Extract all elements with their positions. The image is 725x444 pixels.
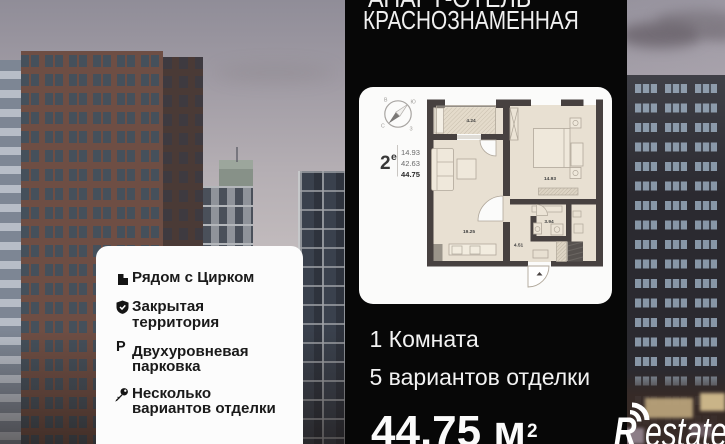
- svg-text:З: З: [410, 127, 413, 133]
- svg-text:19.25: 19.25: [463, 229, 475, 235]
- svg-text:14.93: 14.93: [544, 176, 556, 182]
- svg-text:В: В: [384, 98, 388, 104]
- svg-text:4.24: 4.24: [466, 118, 476, 124]
- svg-text:2: 2: [380, 153, 391, 174]
- svg-text:estate: estate: [645, 408, 725, 444]
- svg-text:е: е: [391, 151, 397, 163]
- svg-text:44.75: 44.75: [401, 170, 421, 179]
- svg-text:Ю: Ю: [411, 100, 416, 106]
- svg-text:42.63: 42.63: [401, 159, 420, 168]
- svg-text:3.94: 3.94: [544, 219, 554, 225]
- svg-text:С: С: [381, 124, 385, 130]
- svg-text:4.51: 4.51: [514, 243, 524, 249]
- svg-text:14.93: 14.93: [401, 148, 420, 157]
